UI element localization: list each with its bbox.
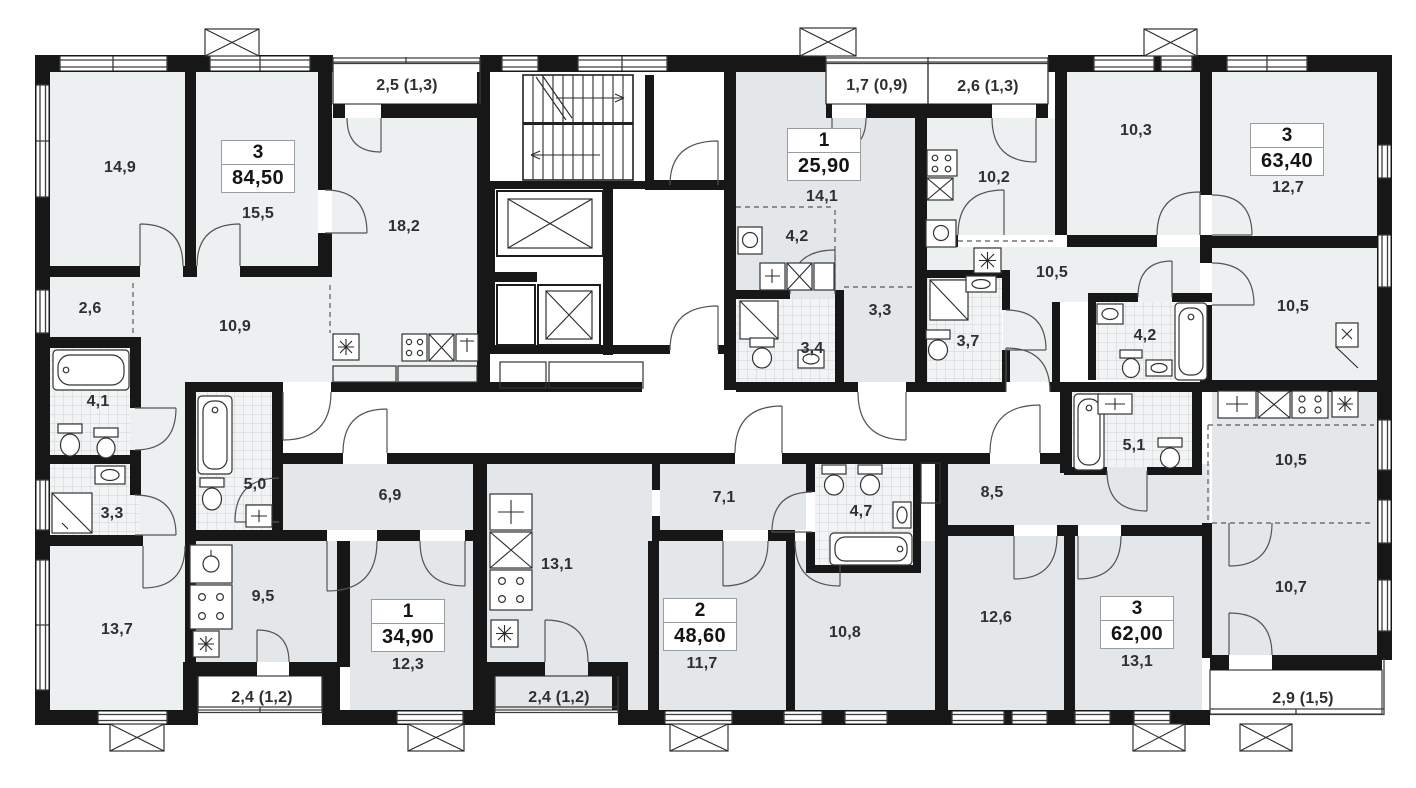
room-area-label: 10,9 [219, 318, 251, 336]
room-area-label: 3,7 [957, 333, 980, 351]
stairs-icon [523, 75, 633, 180]
room-area-label: 3,3 [101, 505, 124, 523]
balcony-area-label: 2,5 (1,3) [376, 77, 437, 95]
room-area-label: 10,7 [1275, 579, 1307, 597]
room-area-label: 10,3 [1120, 122, 1152, 140]
balcony-area-label: 1,7 (0,9) [846, 77, 907, 95]
apartment-info-box: 3 84,50 [221, 140, 295, 193]
apartment-info-box: 1 25,90 [787, 128, 861, 181]
room-area-label: 4,2 [1134, 327, 1157, 345]
floor-plan: 14,9 15,5 18,2 10,9 2,6 4,1 3,3 13,7 2,5… [0, 0, 1416, 788]
apartment-info-box: 2 48,60 [663, 598, 737, 651]
apartment-info-box: 3 62,00 [1100, 596, 1174, 649]
apartment-rooms-count: 1 [788, 129, 860, 153]
room-area-label: 3,4 [801, 340, 824, 358]
elevator-icon [538, 285, 600, 345]
room-area-label: 6,9 [379, 487, 402, 505]
room-area-label: 10,5 [1036, 264, 1068, 282]
room-area-label: 2,6 [79, 300, 102, 318]
apartment-total-area: 34,90 [372, 624, 444, 651]
apartment-total-area: 62,00 [1101, 621, 1173, 648]
room-area-label: 13,1 [541, 556, 573, 574]
balcony-area-label: 2,6 (1,3) [957, 78, 1018, 96]
apartment-info-box: 1 34,90 [371, 599, 445, 652]
room-area-label: 10,5 [1275, 452, 1307, 470]
apartment-rooms-count: 3 [1251, 124, 1323, 148]
room-area-label: 10,8 [829, 624, 861, 642]
room-area-label: 14,1 [806, 188, 838, 206]
apartment-info-box: 3 63,40 [1250, 123, 1324, 176]
room-area-label: 14,9 [104, 159, 136, 177]
service-shaft [497, 285, 535, 345]
room-area-label: 7,1 [713, 489, 736, 507]
apartment-rooms-count: 3 [1101, 597, 1173, 621]
room-area-label: 12,7 [1272, 179, 1304, 197]
room-area-label: 18,2 [388, 218, 420, 236]
balcony-area-label: 2,9 (1,5) [1272, 690, 1333, 708]
room-area-label: 4,7 [850, 503, 873, 521]
apartment-rooms-count: 1 [372, 600, 444, 624]
elevator-icon [497, 191, 603, 256]
room-area-label: 12,6 [980, 609, 1012, 627]
apartment-rooms-count: 3 [222, 141, 294, 165]
room-area-label: 10,2 [978, 169, 1010, 187]
room-area-label: 12,3 [392, 656, 424, 674]
apartment-total-area: 48,60 [664, 623, 736, 650]
apartment-total-area: 63,40 [1251, 148, 1323, 175]
room-area-label: 3,3 [869, 302, 892, 320]
room-area-label: 9,5 [252, 588, 275, 606]
room-area-label: 5,0 [244, 476, 267, 494]
apartment-rooms-count: 2 [664, 599, 736, 623]
apartment-total-area: 84,50 [222, 165, 294, 192]
room-area-label: 8,5 [981, 484, 1004, 502]
room-area-label: 11,7 [686, 655, 717, 673]
washing-machine-icon [738, 227, 762, 254]
room-area-label: 13,1 [1121, 653, 1153, 671]
room-area-label: 13,7 [101, 621, 133, 639]
room-area-label: 4,2 [786, 228, 809, 246]
apartment-total-area: 25,90 [788, 153, 860, 180]
room-area-label: 10,5 [1277, 298, 1309, 316]
room-area-label: 15,5 [242, 205, 274, 223]
room-area-label: 5,1 [1123, 437, 1146, 455]
room-area-label: 4,1 [87, 393, 110, 411]
balcony-area-label: 2,4 (1,2) [231, 689, 292, 707]
balcony-area-label: 2,4 (1,2) [528, 689, 589, 707]
